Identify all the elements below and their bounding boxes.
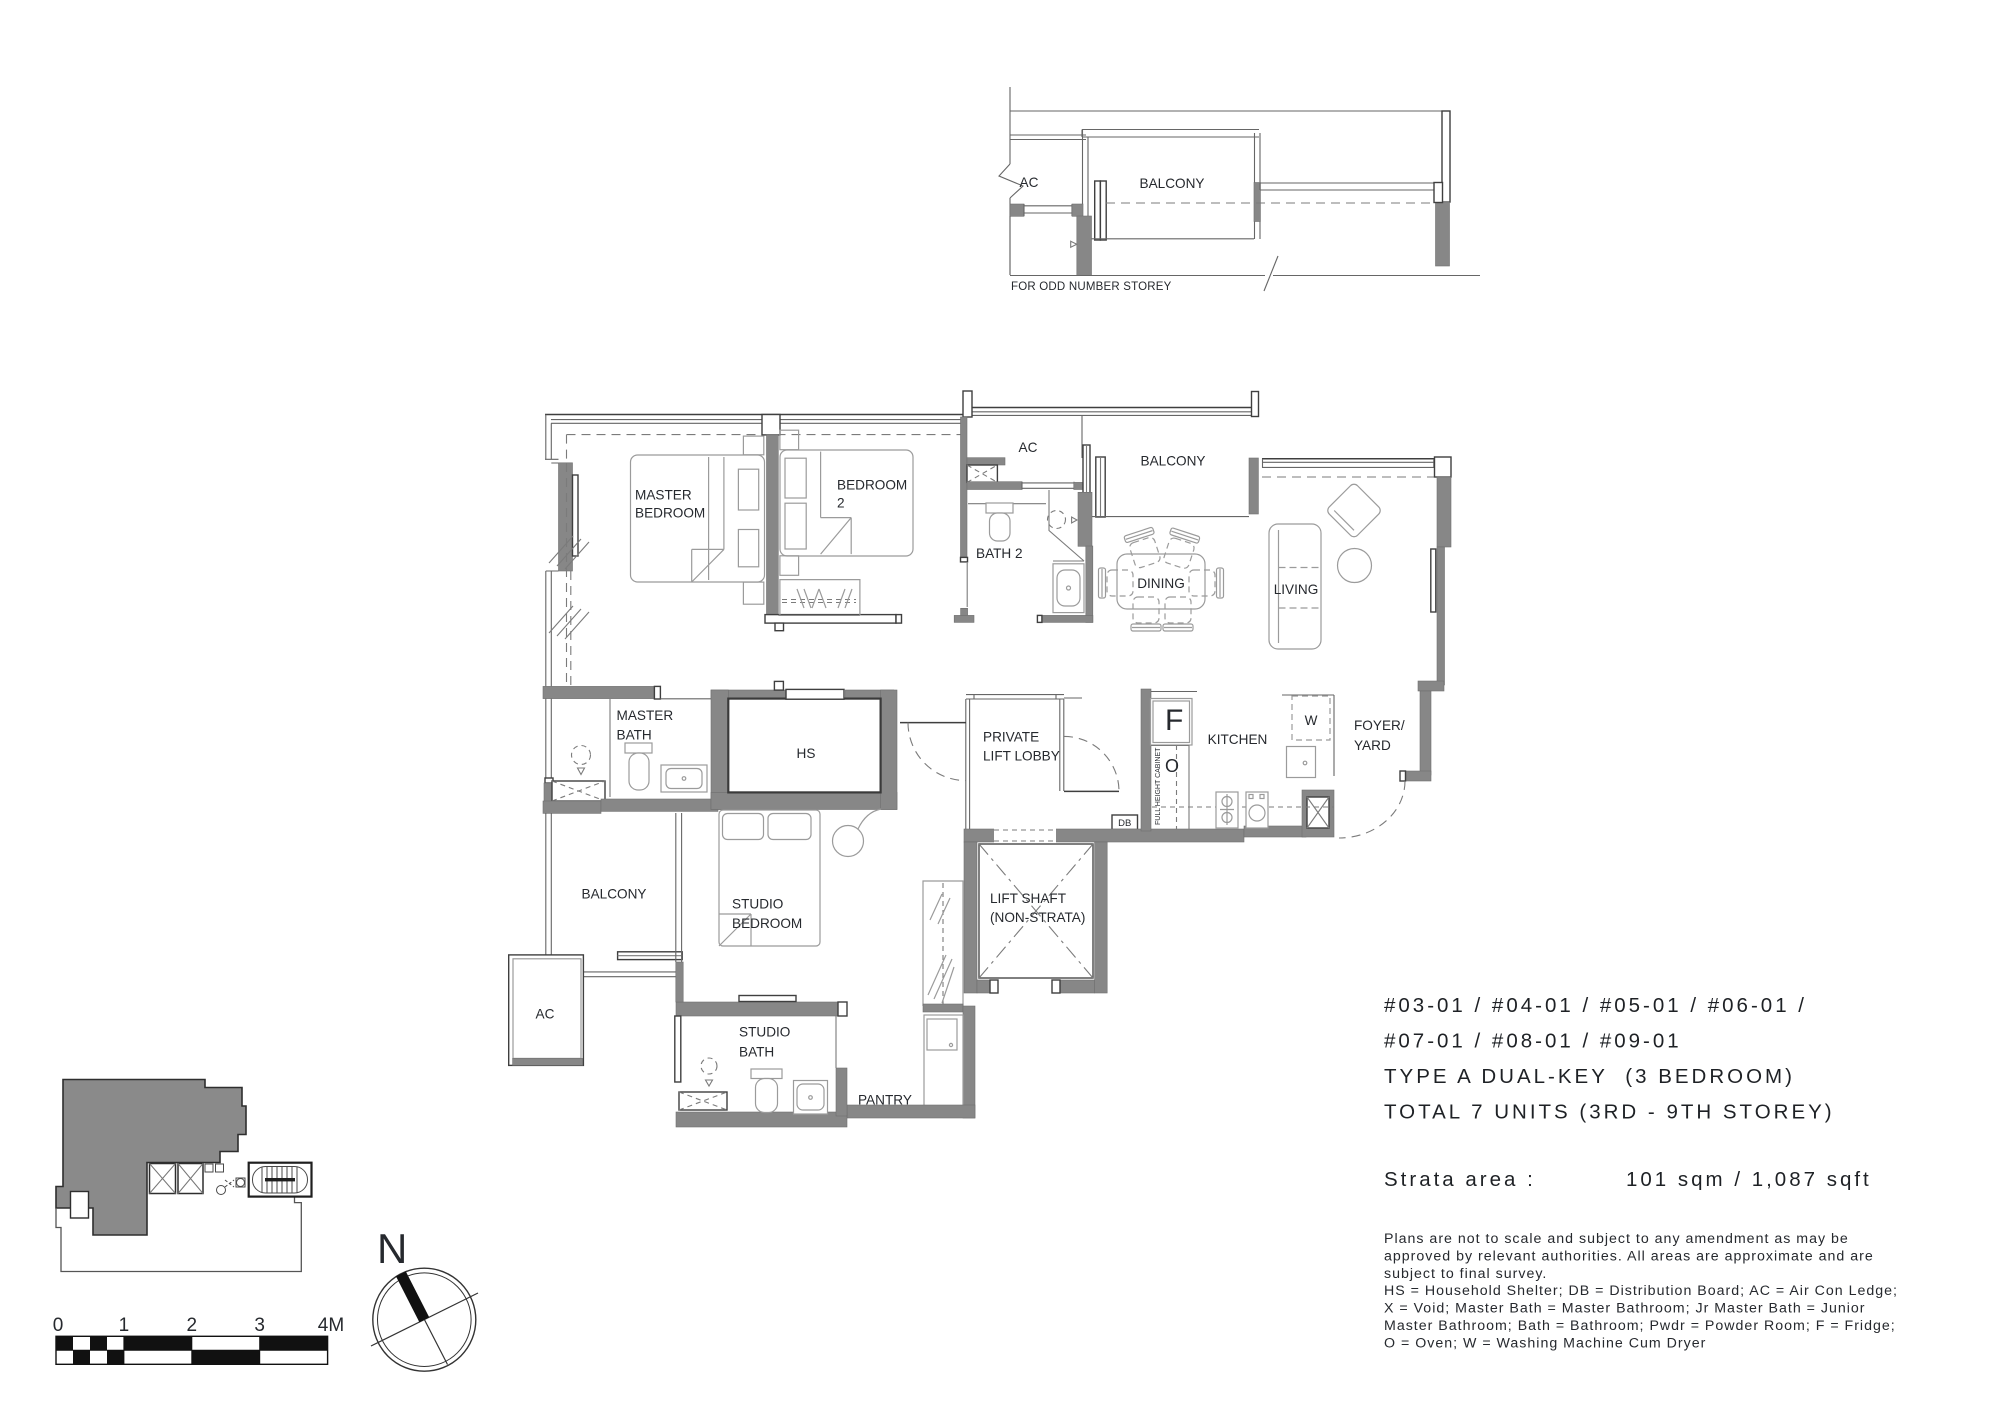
svg-text:AC: AC [536,1007,555,1022]
svg-text:4M: 4M [318,1315,344,1336]
svg-text:STUDIO: STUDIO [739,1025,790,1040]
svg-text:AC: AC [1020,175,1039,190]
svg-text:BATH: BATH [739,1045,774,1060]
svg-text:O = Oven; W = Washing Machine: O = Oven; W = Washing Machine Cum Dryer [1384,1335,1706,1351]
svg-text:AC: AC [1019,440,1038,455]
svg-text:#03-01 / #04-01 / #05-01 / #06: #03-01 / #04-01 / #05-01 / #06-01 / [1384,994,1807,1017]
svg-text:101 sqm / 1,087 sqft: 101 sqm / 1,087 sqft [1626,1168,1872,1191]
svg-text:approved by relevant authoriti: approved by relevant authorities. All ar… [1384,1248,1874,1264]
svg-text:(NON-STRATA): (NON-STRATA) [990,910,1085,925]
svg-text:BEDROOM: BEDROOM [635,506,705,521]
svg-text:FULL HEIGHT CABINET: FULL HEIGHT CABINET [1155,747,1162,825]
svg-text:BEDROOM: BEDROOM [837,478,907,493]
svg-text:TOTAL 7 UNITS (3RD - 9TH STORE: TOTAL 7 UNITS (3RD - 9TH STOREY) [1384,1101,1835,1124]
svg-text:BATH: BATH [617,728,652,743]
svg-text:BALCONY: BALCONY [1140,176,1205,191]
svg-text:Master Bathroom; Bath = Bathro: Master Bathroom; Bath = Bathroom; Pwdr =… [1384,1318,1896,1334]
svg-text:BATH 2: BATH 2 [976,546,1023,561]
svg-text:2: 2 [187,1315,198,1336]
svg-text:LIVING: LIVING [1274,582,1319,597]
svg-text:TYPE A DUAL-KEY (3 BEDROOM): TYPE A DUAL-KEY (3 BEDROOM) [1384,1065,1795,1088]
svg-text:PRIVATE: PRIVATE [983,730,1039,745]
svg-text:DB: DB [1118,818,1131,829]
svg-text:BALCONY: BALCONY [1141,454,1206,469]
svg-text:O: O [1165,756,1179,776]
svg-text:0: 0 [53,1315,64,1336]
svg-text:HS = Household Shelter; DB = D: HS = Household Shelter; DB = Distributio… [1384,1283,1898,1299]
svg-text:N: N [377,1225,407,1272]
svg-text:#07-01 / #08-01 / #09-01: #07-01 / #08-01 / #09-01 [1384,1030,1682,1053]
svg-text:Strata area :: Strata area : [1384,1168,1536,1191]
svg-text:FOR ODD NUMBER STOREY: FOR ODD NUMBER STOREY [1011,281,1172,293]
svg-text:2: 2 [837,496,845,511]
svg-text:DINING: DINING [1137,576,1185,591]
svg-text:KITCHEN: KITCHEN [1208,732,1268,747]
svg-text:F: F [1165,704,1183,737]
svg-text:FOYER/: FOYER/ [1354,718,1405,733]
svg-text:subject to final survey.: subject to final survey. [1384,1266,1547,1282]
svg-text:YARD: YARD [1354,738,1391,753]
svg-text:BALCONY: BALCONY [582,887,647,902]
svg-text:W: W [1305,713,1318,728]
svg-text:MASTER: MASTER [617,708,674,723]
svg-text:LIFT LOBBY: LIFT LOBBY [983,749,1060,764]
svg-text:BEDROOM: BEDROOM [732,916,802,931]
svg-text:HS: HS [797,746,816,761]
svg-text:STUDIO: STUDIO [732,897,783,912]
svg-text:LIFT SHAFT: LIFT SHAFT [990,891,1066,906]
svg-text:1: 1 [119,1315,130,1336]
svg-text:X = Void; Master Bath = Master: X = Void; Master Bath = Master Bathroom;… [1384,1301,1866,1317]
svg-text:3: 3 [254,1315,265,1336]
svg-text:MASTER: MASTER [635,488,692,503]
svg-text:Plans are not to scale and sub: Plans are not to scale and subject to an… [1384,1231,1849,1247]
svg-text:PANTRY: PANTRY [858,1093,912,1108]
